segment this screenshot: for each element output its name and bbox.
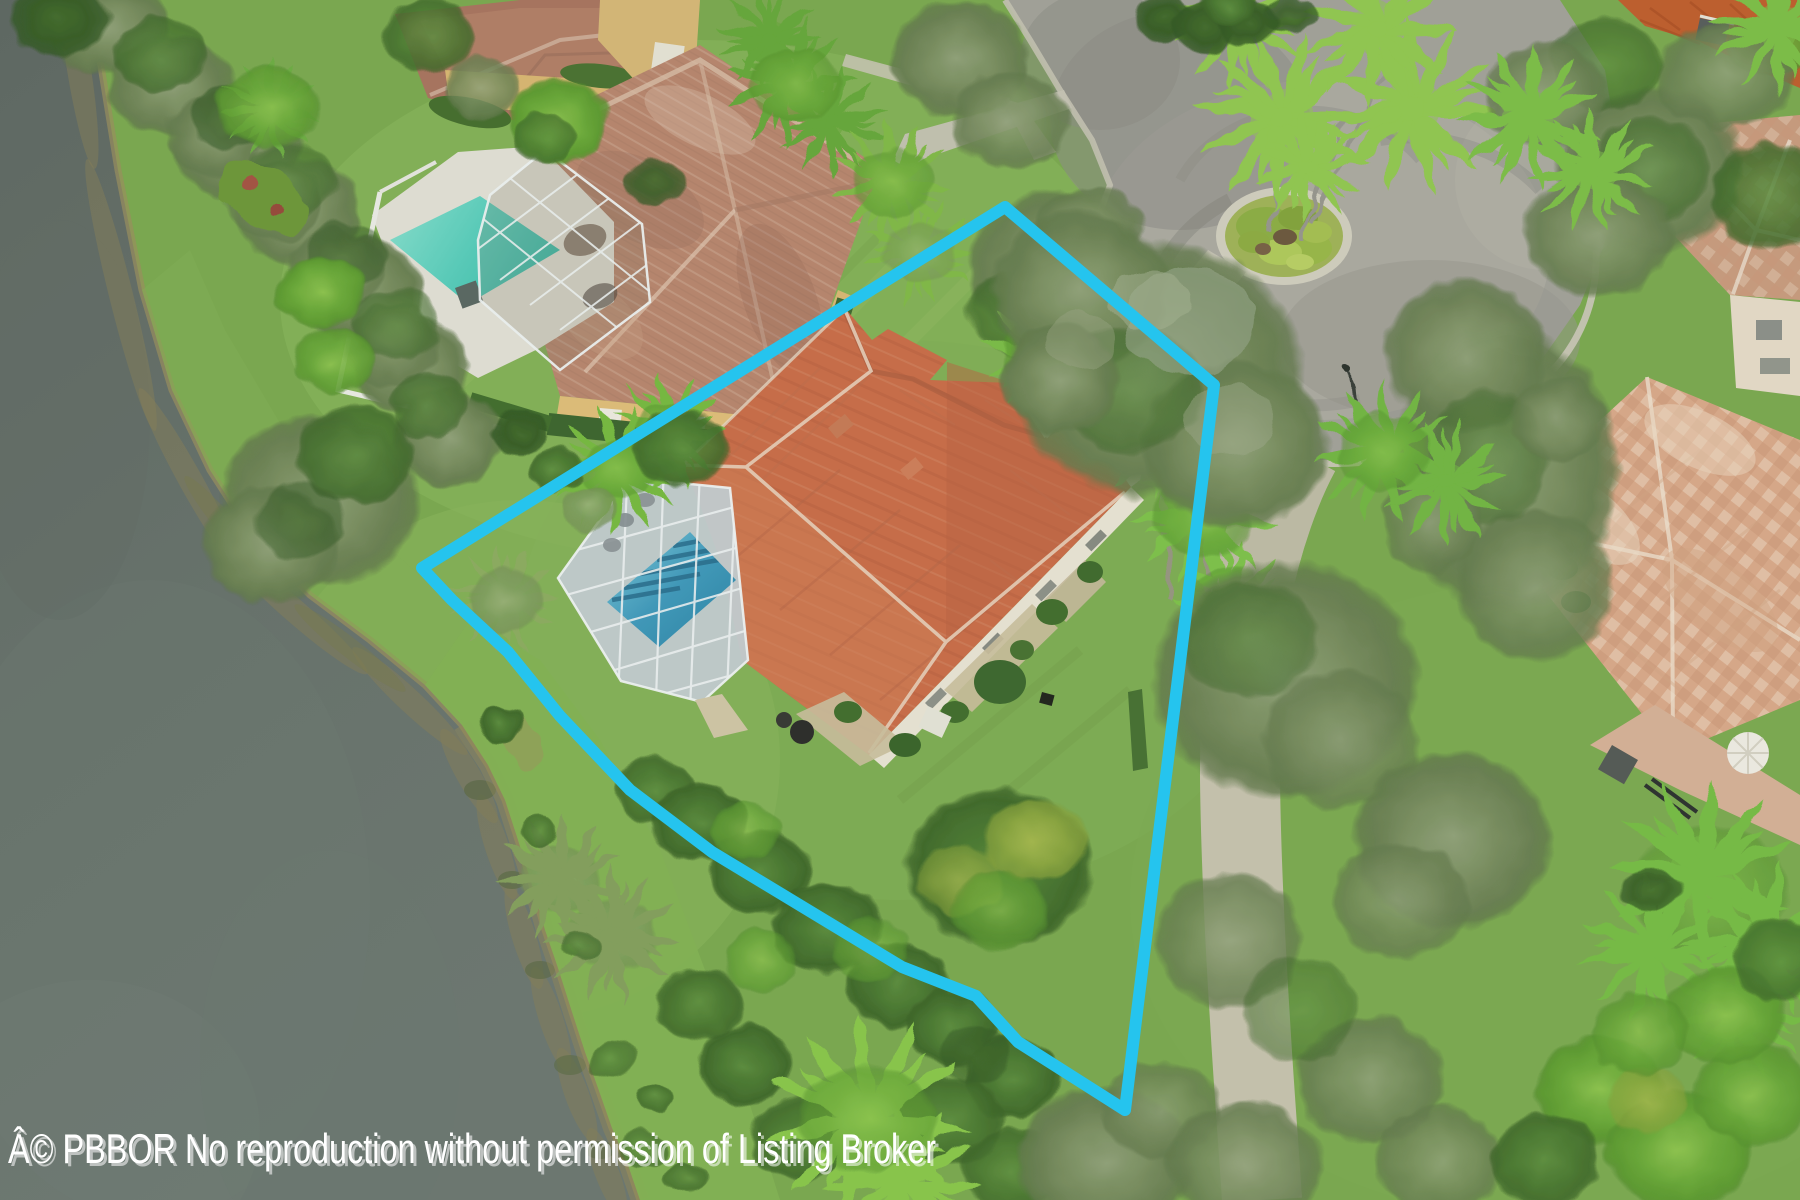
svg-text:Â© PBBOR No reproduction witho: Â© PBBOR No reproduction without permiss… (8, 1125, 936, 1172)
